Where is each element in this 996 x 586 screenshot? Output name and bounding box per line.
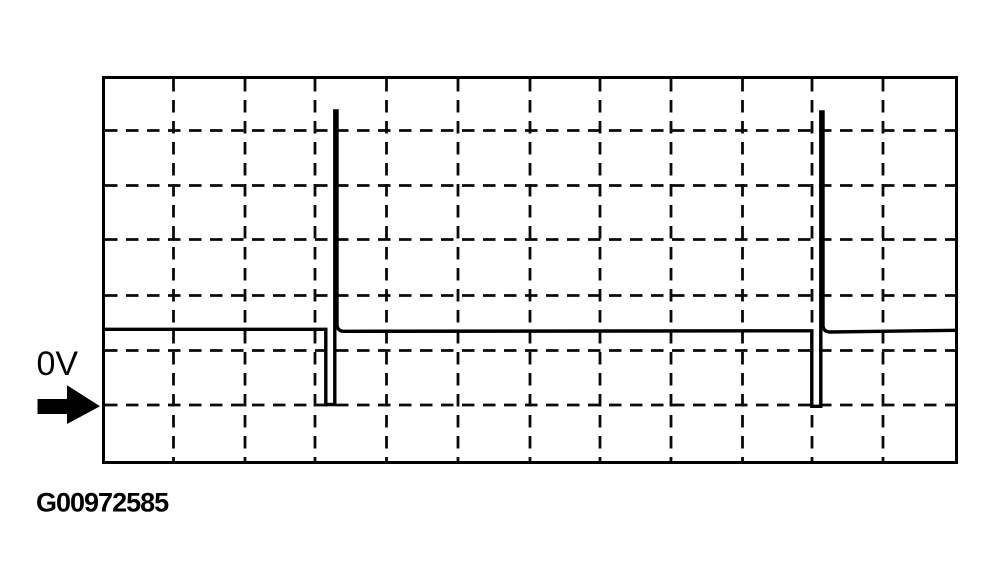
- svg-text:G00972585: G00972585: [36, 488, 169, 518]
- svg-text:0V: 0V: [37, 345, 79, 383]
